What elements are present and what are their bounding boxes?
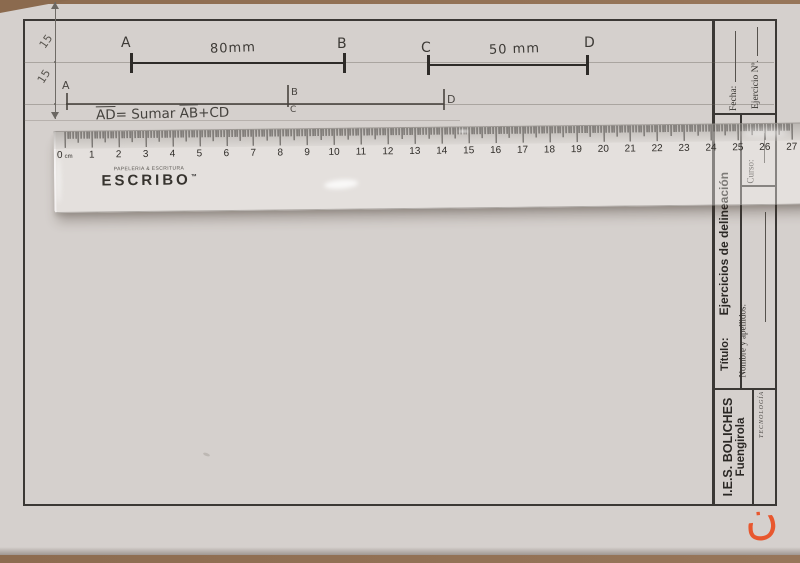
- ruler-tick: [584, 126, 585, 133]
- ruler-tick: [719, 124, 720, 131]
- ruler-tick: [791, 124, 792, 140]
- segment-ab-line: [131, 62, 345, 65]
- ruler-tick: [183, 131, 184, 138]
- ruler-tick: [221, 130, 222, 137]
- ruler-tick: [498, 127, 499, 134]
- ruler-tick: [633, 125, 634, 132]
- segment-ab-tick-a: [130, 53, 133, 73]
- ruler-tick: [563, 126, 564, 137]
- ruler-tick: [226, 130, 227, 146]
- ruler-tick: [143, 131, 144, 138]
- ruler-number: 24: [705, 142, 716, 153]
- ruler-tick: [522, 127, 523, 143]
- ruler-tick: [673, 125, 674, 132]
- ruler-tick: [455, 127, 456, 138]
- ruler-tick: [479, 127, 480, 134]
- ruler-tick: [789, 124, 790, 131]
- ruler-tick: [670, 125, 671, 136]
- ruler-number: 3: [143, 149, 149, 160]
- ruler-tick: [94, 132, 95, 139]
- segment-cd-tick-d: [586, 55, 589, 75]
- ruler-tick: [433, 128, 434, 135]
- ruler-tick: [132, 131, 133, 142]
- ruler-tick: [264, 130, 265, 137]
- ruler-tick: [598, 126, 599, 133]
- ruler-tick: [258, 130, 259, 137]
- ruler-tick: [511, 127, 512, 134]
- ruler-tick: [695, 125, 696, 132]
- ruler-tick: [199, 130, 200, 146]
- ruler-brand: PAPELERIA & ESCRITURA ESCRIBO™: [94, 165, 204, 190]
- trademark-icon: ™: [191, 174, 197, 180]
- ruler-tick: [156, 131, 157, 138]
- drawing-frame: [23, 19, 777, 506]
- ruler-tick: [164, 131, 165, 138]
- ruler-tick: [110, 131, 111, 138]
- ruler-tick: [382, 128, 383, 135]
- ruler-tick: [288, 129, 289, 136]
- ruler-tick: [191, 130, 192, 137]
- fecha-row: Fecha:: [727, 29, 739, 111]
- ruler-tick: [175, 131, 176, 138]
- ruler-tick: [657, 125, 658, 141]
- department-row: TECNOLOGÍA: [759, 386, 767, 438]
- ruler-tick: [234, 130, 235, 137]
- ruler-tick: [342, 129, 343, 136]
- ruler-tick: [126, 131, 127, 138]
- arrow-down-icon: [51, 112, 59, 119]
- ruler-tick: [390, 128, 391, 135]
- ruler-tick: [377, 128, 378, 135]
- ruler-tick: [614, 126, 615, 133]
- ruler-number: 2: [116, 149, 122, 160]
- ruler-tick: [83, 132, 84, 139]
- ruler-tick: [447, 128, 448, 135]
- segment-ab-length: 80mm: [210, 41, 256, 56]
- ruler-number: 26: [759, 142, 770, 153]
- ruler-tick: [439, 128, 440, 135]
- ruler-tick: [705, 125, 706, 132]
- ruler-tick: [347, 129, 348, 140]
- ejercicio-row: Ejercicio Nº.: [749, 25, 761, 109]
- ruler-tick: [135, 131, 136, 138]
- ruler-tick: [218, 130, 219, 137]
- ruler-tick: [275, 129, 276, 136]
- formula-tail: +CD: [198, 105, 229, 122]
- ruler-tick: [277, 129, 278, 136]
- pencil-guide-line: [24, 120, 460, 121]
- ruler-tick: [474, 127, 475, 134]
- formula-ab: AB: [179, 105, 198, 121]
- ruler-tick: [334, 129, 335, 145]
- ruler-tick: [619, 126, 620, 133]
- ruler-tick: [102, 131, 103, 138]
- label-b: B: [337, 37, 347, 51]
- ruler-tick: [678, 125, 679, 132]
- ruler-tick: [178, 131, 179, 138]
- ruler-tick: [398, 128, 399, 135]
- title-block-rule-v2: [752, 388, 754, 504]
- ruler-tick: [250, 130, 251, 137]
- ruler-tick: [188, 130, 189, 137]
- ruler-tick: [684, 125, 685, 141]
- ruler-tick: [118, 131, 119, 147]
- ruler-tick: [506, 127, 507, 134]
- ruler-number: 22: [652, 143, 663, 154]
- ruler-tick: [328, 129, 329, 136]
- ruler-tick: [616, 126, 617, 137]
- ruler-tick: [65, 132, 66, 148]
- ruler-brand-name: ESCRIBO: [101, 171, 191, 189]
- ruler-tick: [323, 129, 324, 136]
- school-city: Fuengirola: [735, 393, 748, 501]
- ruler-tick: [100, 131, 101, 138]
- ruler-number: 4: [170, 149, 176, 160]
- ruler-tick: [603, 126, 604, 142]
- ruler-tick: [487, 127, 488, 134]
- ruler-tick: [716, 124, 717, 131]
- ruler-tick: [592, 126, 593, 133]
- ruler-number: 11: [356, 146, 367, 157]
- ruler-tick: [121, 131, 122, 138]
- ruler-tick: [668, 125, 669, 132]
- ruler-tick: [299, 129, 300, 136]
- ruler-tick: [509, 127, 510, 138]
- ruler-tick: [205, 130, 206, 137]
- ruler-tick: [730, 124, 731, 131]
- ruler-number: 15: [463, 145, 474, 156]
- ruler-tick: [148, 131, 149, 138]
- ruler-tick: [358, 129, 359, 136]
- ruler-number: 6: [224, 148, 230, 159]
- ruler-number: 17: [517, 145, 528, 156]
- ruler-tick: [654, 125, 655, 132]
- ruler-tick: [213, 130, 214, 141]
- ruler-tick: [70, 132, 71, 139]
- ruler-tick: [517, 127, 518, 134]
- ruler-number: 23: [678, 143, 689, 154]
- ruler-tick: [676, 125, 677, 132]
- ruler-tick: [350, 129, 351, 136]
- ruler-tick: [471, 127, 472, 134]
- ruler-tick: [151, 131, 152, 138]
- ruler-tick: [256, 130, 257, 137]
- ruler-tick: [727, 124, 728, 131]
- ruler-tick: [552, 126, 553, 133]
- ruler-tick: [571, 126, 572, 133]
- ruler-tick: [167, 131, 168, 138]
- ruler-tick: [73, 132, 74, 139]
- ruler-tick: [116, 131, 117, 138]
- segment-cd-tick-c: [427, 55, 430, 75]
- ruler-number: 25: [732, 142, 743, 153]
- ruler-tick: [248, 130, 249, 137]
- ruler-tick: [159, 131, 160, 142]
- ruler-tick: [196, 130, 197, 137]
- ruler-tick: [627, 125, 628, 132]
- ruler-tick: [700, 125, 701, 132]
- ruler-tick: [401, 128, 402, 139]
- ruler-tick: [485, 127, 486, 134]
- solution-label-a: A: [62, 80, 70, 91]
- ruler-tick: [568, 126, 569, 133]
- department-label: TECNOLOGÍA: [759, 391, 765, 438]
- segment-ab-tick-b: [343, 53, 346, 73]
- ruler-tick: [590, 126, 591, 137]
- ruler-tick: [738, 124, 739, 140]
- ruler-tick: [137, 131, 138, 138]
- ruler-tick: [245, 130, 246, 137]
- ruler-tick: [153, 131, 154, 138]
- solution-tick-bc: [287, 85, 289, 107]
- ruler-tick: [476, 127, 477, 134]
- ruler-number: 9: [304, 147, 310, 158]
- ruler-tick: [431, 128, 432, 135]
- ruler-tick: [285, 129, 286, 136]
- ruler-tick: [301, 129, 302, 136]
- ruler-tick: [665, 125, 666, 132]
- ruler-tick: [291, 129, 292, 136]
- nombre-label: Nombre y apellidos:: [738, 304, 748, 381]
- ruler-number: 1: [89, 150, 95, 161]
- ruler-tick: [240, 130, 241, 141]
- ruler-tick: [186, 130, 187, 141]
- solution-label-c: C: [290, 106, 296, 115]
- ruler-tick: [735, 124, 736, 131]
- photo-of-worksheet: 15 15 A B 80mm C D 50 mm A B C D AD= Sum…: [0, 0, 800, 563]
- ruler-number: 27: [786, 142, 797, 153]
- ruler-tick: [202, 130, 203, 137]
- school-row: I.E.S. BOLICHES Fuengirola: [721, 393, 751, 501]
- fecha-blank-line: [727, 31, 736, 82]
- ruler-tick: [549, 126, 550, 142]
- ruler-tick: [441, 128, 442, 144]
- ruler-tick: [587, 126, 588, 133]
- watermark-glyph: ن: [742, 492, 780, 541]
- ruler-tick: [310, 129, 311, 136]
- nombre-blank-line: [765, 212, 766, 322]
- ruler-tick: [611, 126, 612, 133]
- ruler-tick: [525, 127, 526, 134]
- solution-tick-d: [443, 89, 445, 110]
- ruler-tick: [312, 129, 313, 136]
- ruler-tick: [161, 131, 162, 138]
- segment-cd-length: 50 mm: [489, 42, 540, 57]
- ruler-tick: [573, 126, 574, 133]
- ruler-tick: [417, 128, 418, 135]
- ruler-tick: [283, 129, 284, 136]
- ruler-tick: [124, 131, 125, 138]
- ruler-tick: [91, 132, 92, 148]
- ruler-tick: [113, 131, 114, 138]
- ruler-tick: [546, 126, 547, 133]
- ruler-number: 13: [409, 146, 420, 157]
- ruler-tick: [404, 128, 405, 135]
- ruler-tick: [231, 130, 232, 137]
- solution-line: [66, 103, 444, 105]
- ruler-number: 10: [328, 147, 339, 158]
- ruler-tick: [393, 128, 394, 135]
- ruler-tick: [380, 128, 381, 135]
- ruler-tick: [369, 128, 370, 135]
- ruler-tick: [606, 126, 607, 133]
- ruler-tick: [105, 131, 106, 142]
- ruler-tick: [423, 128, 424, 135]
- ruler-tick: [528, 127, 529, 134]
- ruler-tick: [490, 127, 491, 134]
- ruler-tick: [229, 130, 230, 137]
- ruler-tick: [622, 126, 623, 133]
- segment-cd-line: [428, 64, 588, 67]
- title-block-left-border: [712, 19, 715, 504]
- ruler-tick: [595, 126, 596, 133]
- label-d: D: [584, 36, 595, 50]
- ruler-tick: [732, 124, 733, 131]
- ruler-tick: [541, 126, 542, 133]
- ruler-tick: [272, 130, 273, 137]
- ruler-number: 20: [598, 144, 609, 155]
- ruler-tick: [180, 131, 181, 138]
- ruler-tick: [194, 130, 195, 137]
- ruler-tick: [210, 130, 211, 137]
- formula-mid: = Sumar: [115, 106, 175, 123]
- ruler-tick: [140, 131, 141, 138]
- ruler-tick: [530, 127, 531, 134]
- ruler-tick: [223, 130, 224, 137]
- ruler-number: 21: [625, 143, 636, 154]
- ruler-tick: [721, 124, 722, 131]
- ruler-tick: [660, 125, 661, 132]
- nombre-row: Nombre y apellidos:: [738, 285, 749, 381]
- ruler-tick: [145, 131, 146, 147]
- solution-label-b: B: [291, 88, 298, 98]
- ruler-tick: [336, 129, 337, 136]
- ruler-tick: [355, 129, 356, 136]
- formula: AD= Sumar AB+CD: [96, 107, 230, 123]
- ruler-tick: [293, 129, 294, 140]
- ruler-tick: [345, 129, 346, 136]
- ruler-tick: [374, 128, 375, 139]
- ruler-tick: [681, 125, 682, 132]
- ruler-number: 7: [250, 148, 256, 159]
- ruler-tick: [740, 124, 741, 131]
- ruler-tick: [172, 131, 173, 147]
- ruler-tick: [396, 128, 397, 135]
- ruler-tick: [242, 130, 243, 137]
- ruler-number: 8: [277, 147, 283, 158]
- ruler-tick: [708, 125, 709, 132]
- ruler-number: 12: [382, 146, 393, 157]
- ruler-tick: [436, 128, 437, 135]
- ruler-tick: [409, 128, 410, 135]
- ruler-tick: [514, 127, 515, 134]
- ruler-tick: [261, 130, 262, 137]
- ruler-tick: [625, 126, 626, 133]
- ruler-tick: [315, 129, 316, 136]
- ruler-tick: [363, 128, 364, 135]
- ruler-tick: [560, 126, 561, 133]
- ruler-tick: [108, 131, 109, 138]
- ruler-tick: [565, 126, 566, 133]
- formula-ad: AD: [96, 107, 116, 123]
- label-c: C: [421, 41, 431, 55]
- ruler-tick: [97, 132, 98, 139]
- ruler-tick: [450, 127, 451, 134]
- ruler-tick: [269, 130, 270, 137]
- ruler-tick: [482, 127, 483, 138]
- ruler-tick: [339, 129, 340, 136]
- ruler-tick: [207, 130, 208, 137]
- ruler-tick: [630, 125, 631, 141]
- fecha-label: Fecha:: [729, 86, 739, 111]
- ruler-tick: [703, 125, 704, 132]
- ruler-tick: [415, 128, 416, 144]
- dimension-tick-dot: [54, 61, 56, 63]
- ruler-tick: [280, 129, 281, 145]
- ruler-tick: [304, 129, 305, 136]
- ruler-tick: [428, 128, 429, 139]
- ruler-tick: [320, 129, 321, 140]
- ruler-tick: [724, 124, 725, 135]
- ruler-tick: [643, 125, 644, 136]
- ruler-tick: [533, 127, 534, 134]
- paper-edge-shadow: [0, 547, 800, 555]
- ruler-tick: [692, 125, 693, 132]
- ruler-tick: [78, 132, 79, 143]
- ruler: 0cm1234567891011121314151617181920212223…: [54, 122, 800, 213]
- ruler-tick: [67, 132, 68, 139]
- ruler-tick: [86, 132, 87, 139]
- ruler-tick: [555, 126, 556, 133]
- dimension-tick-dot: [54, 103, 56, 105]
- ruler-tick: [662, 125, 663, 132]
- school-name: I.E.S. BOLICHES: [721, 393, 735, 501]
- ruler-tick: [638, 125, 639, 132]
- ruler-tick: [646, 125, 647, 132]
- ruler-tick: [406, 128, 407, 135]
- ruler-tick: [635, 125, 636, 132]
- ruler-tick: [296, 129, 297, 136]
- ruler-number: 19: [571, 144, 582, 155]
- ruler-tick: [501, 127, 502, 134]
- arrow-up-icon: [51, 2, 59, 9]
- ruler-tick: [388, 128, 389, 144]
- ruler-tick: [538, 126, 539, 133]
- ruler-tick: [326, 129, 327, 136]
- ruler-tick: [581, 126, 582, 133]
- ruler-tick: [579, 126, 580, 133]
- titulo-label: Título:: [719, 337, 731, 387]
- ruler-tick: [713, 125, 714, 132]
- ruler-tick: [425, 128, 426, 135]
- ruler-number: 18: [544, 144, 555, 155]
- ruler-tick: [600, 126, 601, 133]
- ruler-tick: [361, 129, 362, 145]
- ruler-tick: [420, 128, 421, 135]
- ruler-tick: [412, 128, 413, 135]
- ruler-tick: [331, 129, 332, 136]
- ruler-tick: [353, 129, 354, 136]
- ruler-tick: [649, 125, 650, 132]
- ruler-tick: [686, 125, 687, 132]
- ruler-tick: [89, 132, 90, 139]
- solution-tick-a: [66, 93, 68, 110]
- ruler-tick: [452, 127, 453, 134]
- ruler-unit-label: cm: [65, 154, 73, 160]
- ruler-tick: [307, 129, 308, 145]
- ruler-tick: [503, 127, 504, 134]
- ruler-tick: [495, 127, 496, 143]
